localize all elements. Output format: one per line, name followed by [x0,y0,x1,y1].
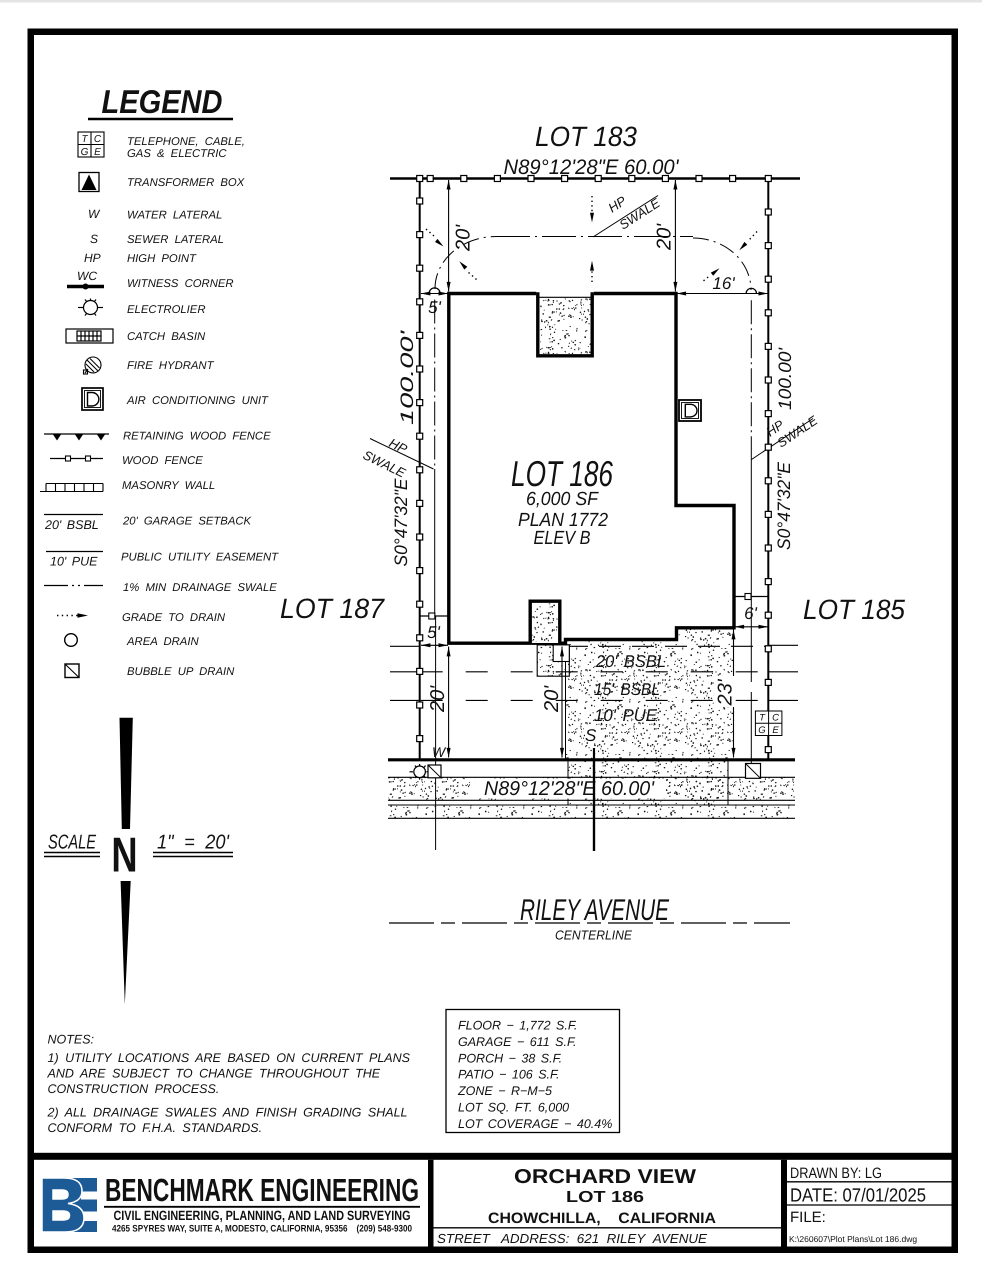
svg-text:GRADE TO DRAIN: GRADE TO DRAIN [122,612,226,624]
svg-text:LOT 187: LOT 187 [280,593,385,624]
svg-text:DRAWN BY: LG: DRAWN BY: LG [790,1165,882,1182]
svg-text:PORCH − 38 S.F.: PORCH − 38 S.F. [458,1051,562,1065]
svg-text:PATIO − 106 S.F.: PATIO − 106 S.F. [458,1068,560,1082]
svg-text:C: C [94,134,102,145]
svg-text:S: S [90,232,98,246]
svg-text:2) ALL DRAINAGE SWALES AND: 2) ALL DRAINAGE SWALES AND FINISH GRADIN… [47,1106,408,1120]
svg-text:TELEPHONE, CABLE,: TELEPHONE, CABLE, [127,136,245,148]
svg-text:LOT 183: LOT 183 [535,121,637,152]
svg-text:GARAGE − 611 S.F.: GARAGE − 611 S.F. [458,1035,576,1049]
svg-text:BUBBLE UP DRAIN: BUBBLE UP DRAIN [127,666,235,678]
svg-text:LOT 185: LOT 185 [803,594,905,625]
svg-text:6': 6' [744,604,757,623]
svg-text:10' PUE: 10' PUE [50,555,98,569]
svg-text:10' PUE: 10' PUE [594,706,658,725]
svg-text:SEWER LATERAL: SEWER LATERAL [127,234,224,246]
svg-text:RILEY AVENUE: RILEY AVENUE [520,894,670,927]
svg-text:20': 20' [427,685,449,713]
svg-text:16': 16' [712,274,735,293]
svg-text:FILE:: FILE: [790,1209,826,1226]
svg-text:CIVIL ENGINEERING, PLANNING, A: CIVIL ENGINEERING, PLANNING, AND LAND SU… [114,1208,411,1223]
svg-text:SCALE: SCALE [48,832,96,854]
svg-text:4265 SPYRES WAY, SUITE A, MODE: 4265 SPYRES WAY, SUITE A, MODESTO, CALIF… [112,1224,412,1235]
svg-text:RETAINING WOOD FENCE: RETAINING WOOD FENCE [123,431,271,443]
svg-text:CONFORM TO F.H.A. STANDARDS: CONFORM TO F.H.A. STANDARDS. [48,1121,263,1135]
svg-text:FLOOR − 1,772 S.F.: FLOOR − 1,772 S.F. [458,1019,577,1033]
svg-text:CATCH BASIN: CATCH BASIN [127,331,206,343]
svg-text:20': 20' [453,224,475,252]
svg-text:20': 20' [541,685,563,713]
svg-text:G: G [758,725,765,736]
svg-text:S0°47'32"E: S0°47'32"E [391,478,411,567]
svg-text:WC: WC [77,269,97,283]
svg-text:DATE: 07/01/2025: DATE: 07/01/2025 [790,1186,926,1207]
svg-text:PUBLIC UTILITY EASEMENT: PUBLIC UTILITY EASEMENT [121,552,279,564]
svg-text:WITNESS CORNER: WITNESS CORNER [127,278,234,290]
svg-text:TRANSFORMER BOX: TRANSFORMER BOX [127,177,245,189]
svg-text:HP: HP [84,251,101,265]
svg-text:CHOWCHILLA, CALIFORNIA: CHOWCHILLA, CALIFORNIA [488,1210,716,1227]
svg-text:ELECTROLIER: ELECTROLIER [127,304,205,316]
svg-text:MASONRY WALL: MASONRY WALL [122,480,215,492]
svg-text:LOT 186: LOT 186 [566,1189,644,1206]
svg-text:ZONE − R−M−5: ZONE − R−M−5 [457,1084,552,1098]
svg-text:NOTES:: NOTES: [48,1033,95,1047]
svg-text:1) UTILITY LOCATIONS ARE B: 1) UTILITY LOCATIONS ARE BASED ON CURREN… [48,1051,411,1065]
svg-text:LOT COVERAGE − 40.4%: LOT COVERAGE − 40.4% [458,1117,612,1131]
svg-text:S: S [585,726,597,745]
svg-text:23': 23' [715,678,737,706]
svg-text:20' GARAGE SETBACK: 20' GARAGE SETBACK [122,516,252,528]
svg-text:C: C [772,713,779,724]
svg-text:LEGEND: LEGEND [102,83,223,120]
svg-text:WOOD FENCE: WOOD FENCE [122,455,203,467]
svg-text:LOT 186: LOT 186 [511,453,614,494]
svg-text:N89°12'28"E 60.00': N89°12'28"E 60.00' [484,778,655,800]
svg-text:K:\260607\Plot Plans\Lot 186.d: K:\260607\Plot Plans\Lot 186.dwg [789,1234,917,1244]
svg-text:1" = 20': 1" = 20' [157,832,230,854]
svg-text:E: E [94,147,101,158]
svg-text:100.00': 100.00' [397,330,417,425]
svg-text:S0°47'32"E: S0°47'32"E [774,461,794,550]
svg-text:T: T [81,134,88,145]
svg-text:ELEV B: ELEV B [534,528,591,549]
svg-text:100.00': 100.00' [775,347,795,410]
svg-text:5': 5' [427,623,440,642]
svg-text:AREA DRAIN: AREA DRAIN [126,636,199,648]
svg-text:1% MIN DRAINAGE SWALE: 1% MIN DRAINAGE SWALE [123,582,277,594]
svg-text:BENCHMARK ENGINEERING: BENCHMARK ENGINEERING [105,1172,419,1208]
svg-text:AIR CONDITIONING UNIT: AIR CONDITIONING UNIT [126,395,269,407]
svg-text:CONSTRUCTION PROCESS.: CONSTRUCTION PROCESS. [48,1082,220,1096]
svg-text:20' BSBL: 20' BSBL [595,652,666,671]
svg-text:W: W [88,207,101,221]
svg-text:6,000 SF: 6,000 SF [526,489,599,510]
svg-text:E: E [772,725,779,736]
svg-text:AND ARE SUBJECT TO CHANGE: AND ARE SUBJECT TO CHANGE THROUGHOUT THE [47,1067,381,1081]
svg-text:FIRE HYDRANT: FIRE HYDRANT [127,360,215,372]
svg-text:CENTERLINE: CENTERLINE [555,928,632,943]
svg-text:N: N [111,829,137,883]
svg-text:15' BSBL: 15' BSBL [594,680,660,699]
svg-text:W: W [432,744,447,760]
svg-text:GAS & ELECTRIC: GAS & ELECTRIC [127,148,227,160]
svg-text:G: G [81,147,89,158]
svg-text:LOT SQ. FT. 6,000: LOT SQ. FT. 6,000 [458,1101,569,1115]
svg-text:STREET ADDRESS: 621 RILEY: STREET ADDRESS: 621 RILEY AVENUE [437,1231,707,1246]
svg-text:20' BSBL: 20' BSBL [44,518,99,532]
svg-text:ORCHARD VIEW: ORCHARD VIEW [514,1166,696,1188]
svg-text:HIGH POINT: HIGH POINT [127,253,197,265]
svg-text:WATER LATERAL: WATER LATERAL [127,210,222,222]
